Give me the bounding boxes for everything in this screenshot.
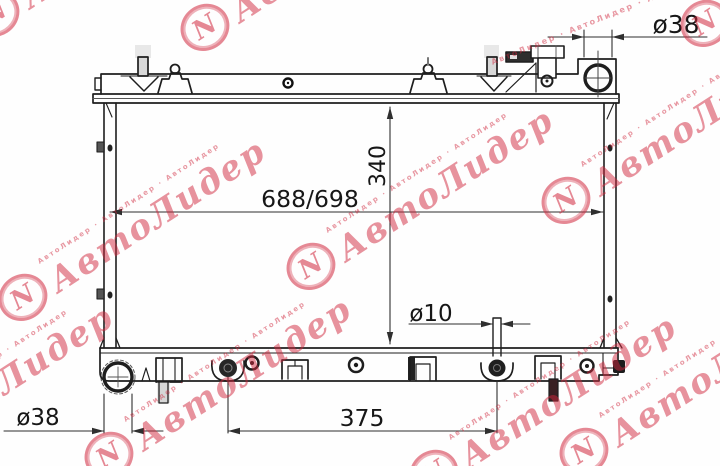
clip-bracket-1 bbox=[282, 360, 308, 379]
filler-neck bbox=[506, 46, 564, 92]
svg-text:375: 375 bbox=[340, 404, 385, 432]
mount-pin-top-right bbox=[484, 45, 499, 58]
dim-top-outlet-diameter: ø38 bbox=[548, 10, 707, 57]
right-side-channel bbox=[600, 103, 622, 348]
svg-text:ø38: ø38 bbox=[652, 10, 699, 39]
edge-clamp bbox=[613, 360, 625, 373]
svg-text:688/698: 688/698 bbox=[261, 185, 359, 213]
filler-cap bbox=[531, 46, 564, 58]
inlet-port bbox=[585, 51, 611, 97]
clip-bracket-2 bbox=[408, 357, 436, 380]
svg-text:ø38: ø38 bbox=[16, 405, 59, 431]
bottom-tank bbox=[100, 318, 625, 403]
dim-pin-diameter: ø10 bbox=[409, 301, 530, 327]
left-side-channel bbox=[97, 103, 120, 348]
dim-bottom-outlet-diameter: ø38 bbox=[4, 394, 163, 434]
radiator-drawing-page: ø38 340 688/698 ø10 375 bbox=[0, 0, 720, 466]
mount-pin-o10 bbox=[481, 318, 513, 381]
dim-overall-width: 688/698 bbox=[110, 185, 603, 215]
dim-pin-span: 375 bbox=[228, 374, 497, 434]
dim-core-height: 340 bbox=[366, 107, 393, 344]
mount-bracket-top-center bbox=[410, 73, 447, 93]
outlet-port bbox=[101, 360, 135, 394]
mount-pin-top-left bbox=[135, 45, 151, 58]
radiator-technical-drawing: ø38 340 688/698 ø10 375 bbox=[0, 0, 720, 466]
svg-text:ø10: ø10 bbox=[409, 301, 452, 327]
clip-bracket-3 bbox=[535, 356, 561, 401]
svg-text:340: 340 bbox=[366, 145, 391, 187]
